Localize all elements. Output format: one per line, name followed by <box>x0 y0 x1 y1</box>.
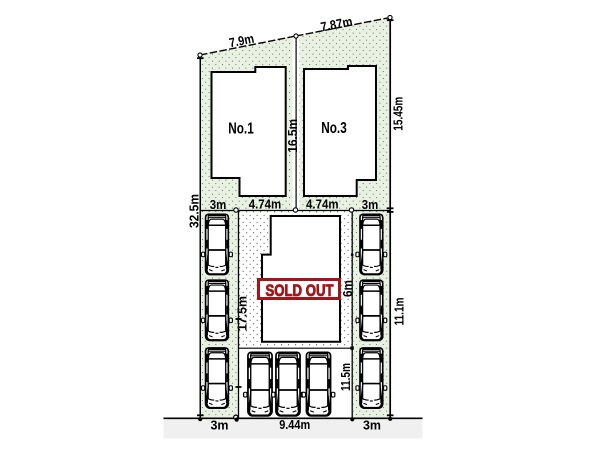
svg-text:6m: 6m <box>340 280 355 297</box>
svg-text:11.1m: 11.1m <box>392 298 407 326</box>
svg-text:No.1: No.1 <box>228 120 254 137</box>
svg-text:3m: 3m <box>362 197 379 212</box>
svg-text:17.5m: 17.5m <box>235 296 250 331</box>
svg-text:11.5m: 11.5m <box>338 363 353 391</box>
svg-text:4.74m: 4.74m <box>306 196 339 211</box>
svg-text:4.74m: 4.74m <box>249 196 282 211</box>
svg-text:No.3: No.3 <box>321 120 347 137</box>
svg-text:3m: 3m <box>210 197 227 212</box>
svg-text:9.44m: 9.44m <box>279 417 310 432</box>
svg-text:16.5m: 16.5m <box>285 119 300 153</box>
svg-text:3m: 3m <box>363 417 381 432</box>
svg-text:15.45m: 15.45m <box>391 97 406 131</box>
svg-text:32.5m: 32.5m <box>186 194 201 228</box>
svg-text:3m: 3m <box>211 417 229 432</box>
svg-text:SOLD OUT: SOLD OUT <box>266 282 334 300</box>
